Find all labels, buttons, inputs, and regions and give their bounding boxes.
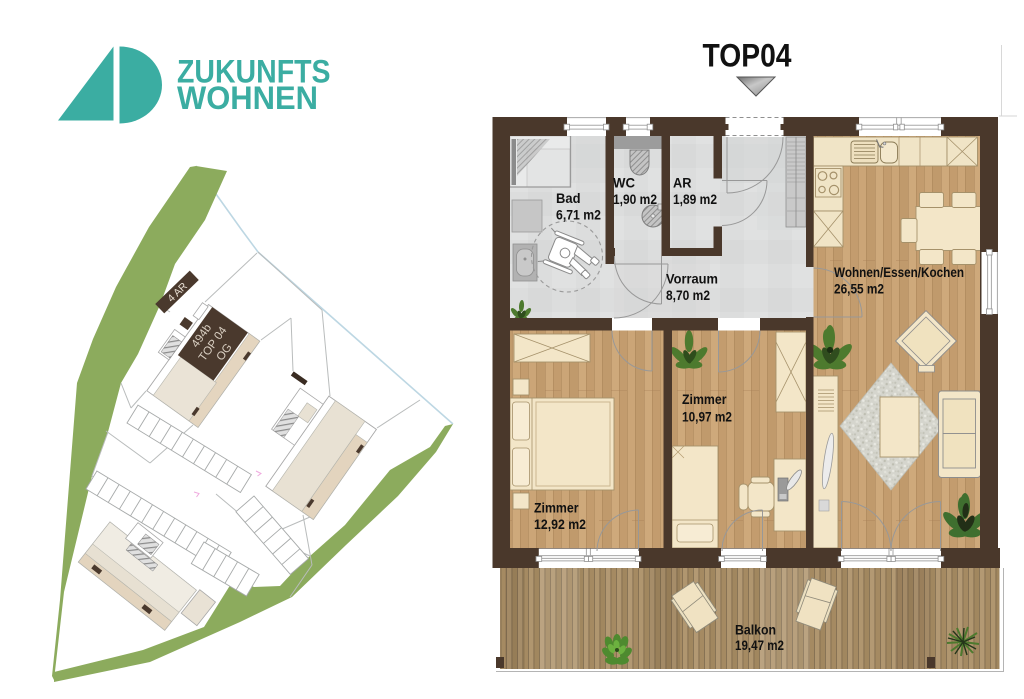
svg-text:10,97 m2: 10,97 m2 xyxy=(682,410,732,425)
svg-text:AR: AR xyxy=(673,176,692,191)
svg-text:Balkon: Balkon xyxy=(735,623,776,638)
svg-text:Zimmer: Zimmer xyxy=(534,501,579,516)
svg-text:8,70 m2: 8,70 m2 xyxy=(666,288,710,303)
svg-text:1,89 m2: 1,89 m2 xyxy=(673,192,717,207)
svg-text:Bad: Bad xyxy=(556,191,581,206)
svg-text:Wohnen/Essen/Kochen: Wohnen/Essen/Kochen xyxy=(834,265,964,280)
svg-text:19,47 m2: 19,47 m2 xyxy=(735,638,784,653)
svg-text:12,92 m2: 12,92 m2 xyxy=(534,517,586,532)
svg-text:TOP04: TOP04 xyxy=(703,38,792,74)
svg-text:6,71 m2: 6,71 m2 xyxy=(556,208,601,223)
svg-text:Vorraum: Vorraum xyxy=(666,272,718,287)
svg-text:1,90 m2: 1,90 m2 xyxy=(613,192,657,207)
svg-text:WOHNEN: WOHNEN xyxy=(177,80,318,116)
svg-text:Zimmer: Zimmer xyxy=(682,392,727,407)
svg-text:WC: WC xyxy=(613,176,635,191)
svg-text:26,55 m2: 26,55 m2 xyxy=(834,282,884,297)
